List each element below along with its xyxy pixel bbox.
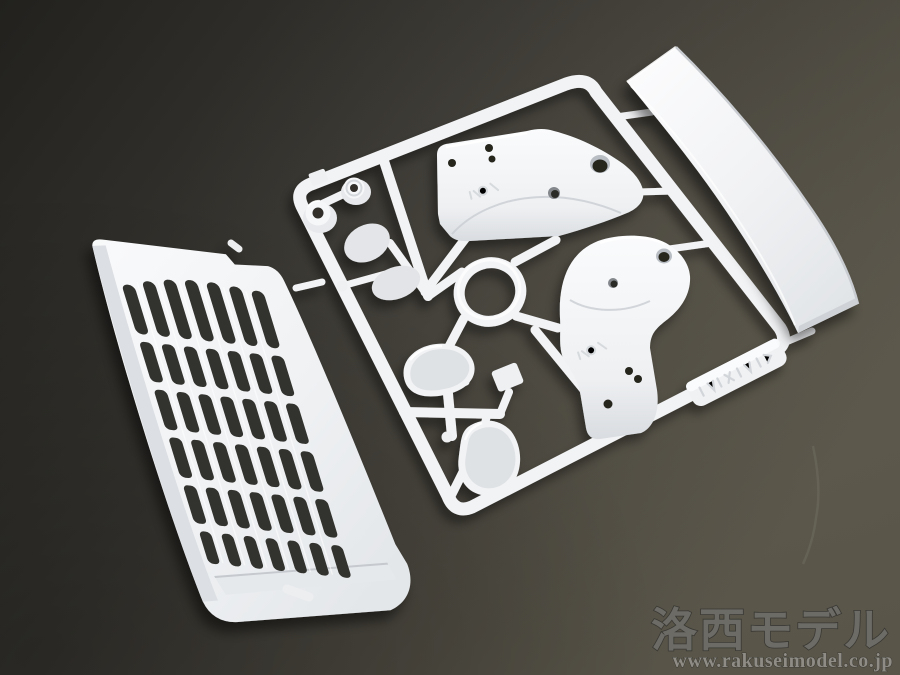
runner-ball-end	[442, 432, 453, 443]
product-photo: 洛西モデル www.rakuseimodel.co.jp	[0, 0, 900, 675]
watermark-brand: 洛西モデル	[651, 603, 891, 657]
watermark: 洛西モデル www.rakuseimodel.co.jp	[651, 603, 893, 672]
wedge-part-lower	[458, 421, 520, 496]
photo-canvas: 洛西モデル www.rakuseimodel.co.jp	[0, 0, 900, 675]
runner-ball-end	[337, 281, 348, 292]
watermark-url: www.rakuseimodel.co.jp	[673, 650, 893, 672]
grille-gate-stub	[231, 243, 239, 249]
